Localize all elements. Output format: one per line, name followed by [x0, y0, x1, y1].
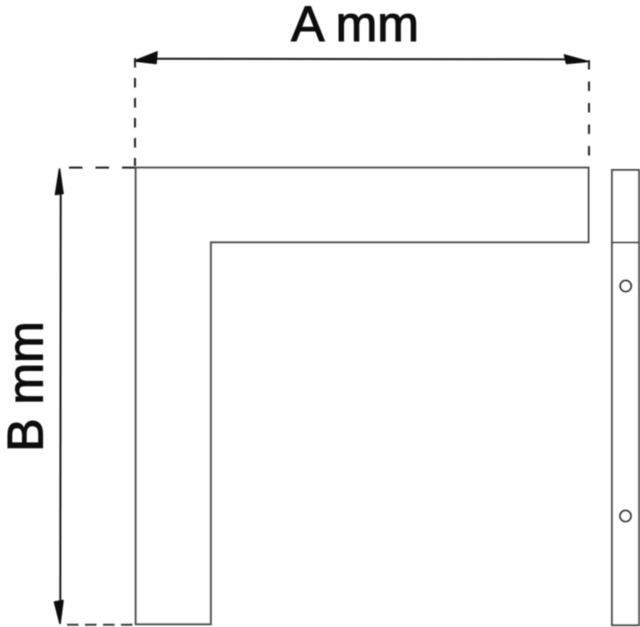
svg-text:A mm: A mm — [291, 0, 419, 52]
svg-text:B mm: B mm — [0, 321, 54, 452]
